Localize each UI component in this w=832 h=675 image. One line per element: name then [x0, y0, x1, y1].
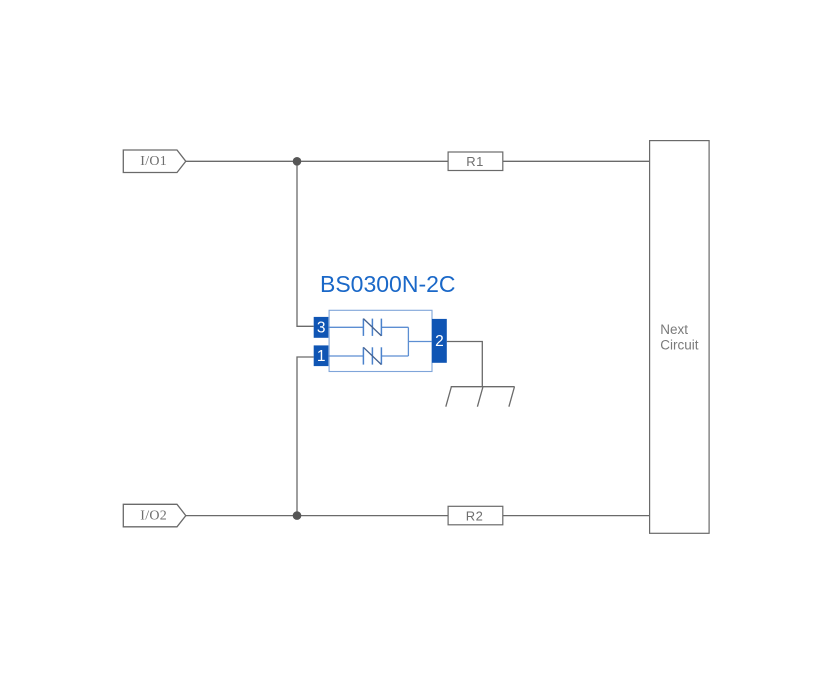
svg-text:2: 2: [435, 333, 444, 350]
svg-text:R2: R2: [466, 509, 483, 524]
svg-text:R1: R1: [466, 154, 483, 169]
svg-text:I/O1: I/O1: [140, 154, 167, 169]
svg-text:Next: Next: [660, 322, 688, 337]
svg-text:BS0300N-2C: BS0300N-2C: [320, 271, 456, 297]
svg-text:1: 1: [317, 348, 326, 365]
svg-text:3: 3: [317, 320, 326, 337]
svg-text:Circuit: Circuit: [660, 338, 699, 353]
svg-text:I/O2: I/O2: [140, 508, 167, 523]
